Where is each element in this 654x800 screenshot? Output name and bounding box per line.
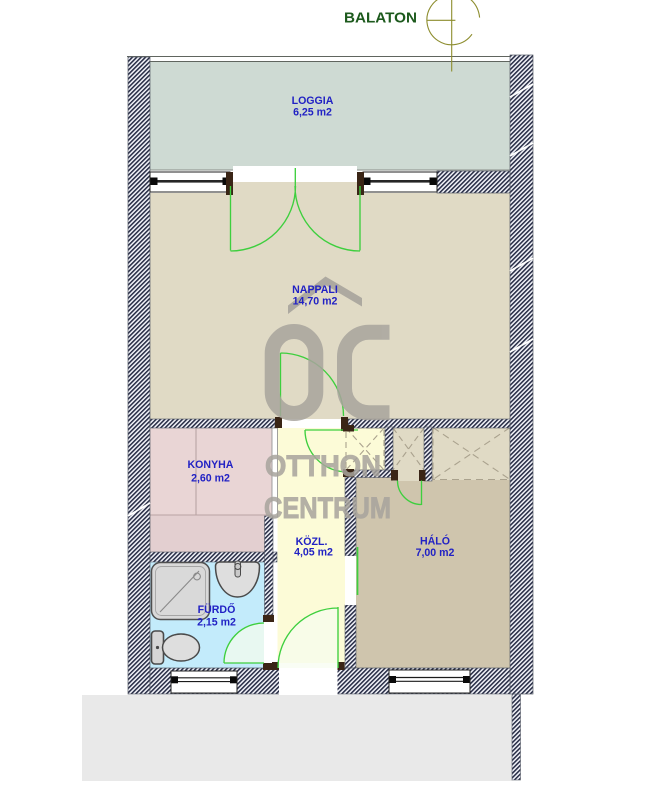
svg-text:OTTHON: OTTHON — [265, 450, 381, 483]
svg-text:2,60 m2: 2,60 m2 — [191, 473, 230, 485]
svg-text:2,15 m2: 2,15 m2 — [197, 617, 236, 629]
svg-text:6,25 m2: 6,25 m2 — [293, 107, 332, 119]
svg-text:14,70 m2: 14,70 m2 — [293, 296, 338, 308]
svg-text:FÜRDŐ: FÜRDŐ — [198, 603, 236, 616]
svg-text:HÁLÓ: HÁLÓ — [420, 535, 450, 548]
svg-text:KONYHA: KONYHA — [188, 459, 234, 471]
svg-text:4,05 m2: 4,05 m2 — [294, 547, 333, 559]
svg-text:LOGGIA: LOGGIA — [292, 95, 334, 107]
svg-text:BALATON: BALATON — [344, 10, 417, 26]
svg-text:CENTRUM: CENTRUM — [264, 492, 391, 525]
svg-text:NAPPALI: NAPPALI — [292, 284, 338, 296]
svg-text:7,00 m2: 7,00 m2 — [416, 547, 455, 559]
